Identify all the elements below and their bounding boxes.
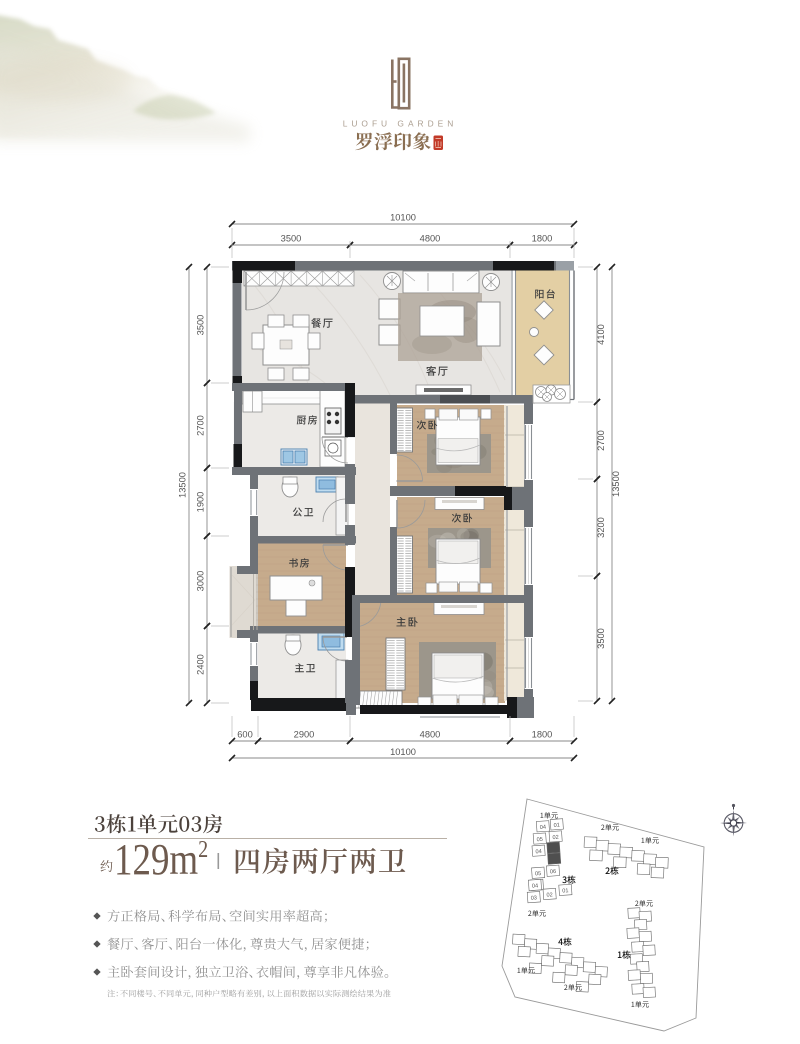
svg-text:2700: 2700: [196, 415, 206, 436]
svg-text:04: 04: [532, 883, 539, 889]
svg-text:13500: 13500: [611, 471, 621, 497]
svg-text:2700: 2700: [596, 430, 606, 451]
svg-text:06: 06: [550, 869, 557, 875]
svg-text:10100: 10100: [390, 747, 416, 757]
svg-text:3000: 3000: [196, 571, 206, 592]
svg-text:03: 03: [531, 895, 538, 901]
svg-text:1800: 1800: [532, 730, 553, 740]
svg-text:129m2: 129m2: [114, 835, 208, 884]
svg-text:3500: 3500: [596, 628, 606, 649]
svg-text:02: 02: [552, 835, 559, 841]
svg-text:4800: 4800: [420, 730, 441, 740]
svg-text:05: 05: [535, 871, 542, 877]
svg-text:4100: 4100: [596, 324, 606, 345]
svg-text:01: 01: [562, 888, 569, 894]
svg-text:01: 01: [554, 823, 561, 829]
svg-text:02: 02: [546, 892, 553, 898]
svg-text:3500: 3500: [196, 315, 206, 336]
svg-text:1800: 1800: [532, 234, 553, 244]
svg-text:LUOFU GARDEN: LUOFU GARDEN: [343, 119, 458, 129]
svg-text:3200: 3200: [596, 517, 606, 538]
svg-text:600: 600: [237, 730, 253, 740]
svg-text:2400: 2400: [196, 654, 206, 675]
svg-text:3500: 3500: [281, 234, 302, 244]
svg-text:4800: 4800: [420, 234, 441, 244]
svg-text:1900: 1900: [196, 492, 206, 513]
svg-text:10100: 10100: [390, 213, 416, 223]
svg-text:05: 05: [536, 837, 543, 843]
svg-text:04: 04: [540, 825, 547, 831]
svg-text:2900: 2900: [294, 730, 315, 740]
svg-text:04: 04: [535, 849, 542, 855]
svg-text:13500: 13500: [178, 472, 188, 498]
